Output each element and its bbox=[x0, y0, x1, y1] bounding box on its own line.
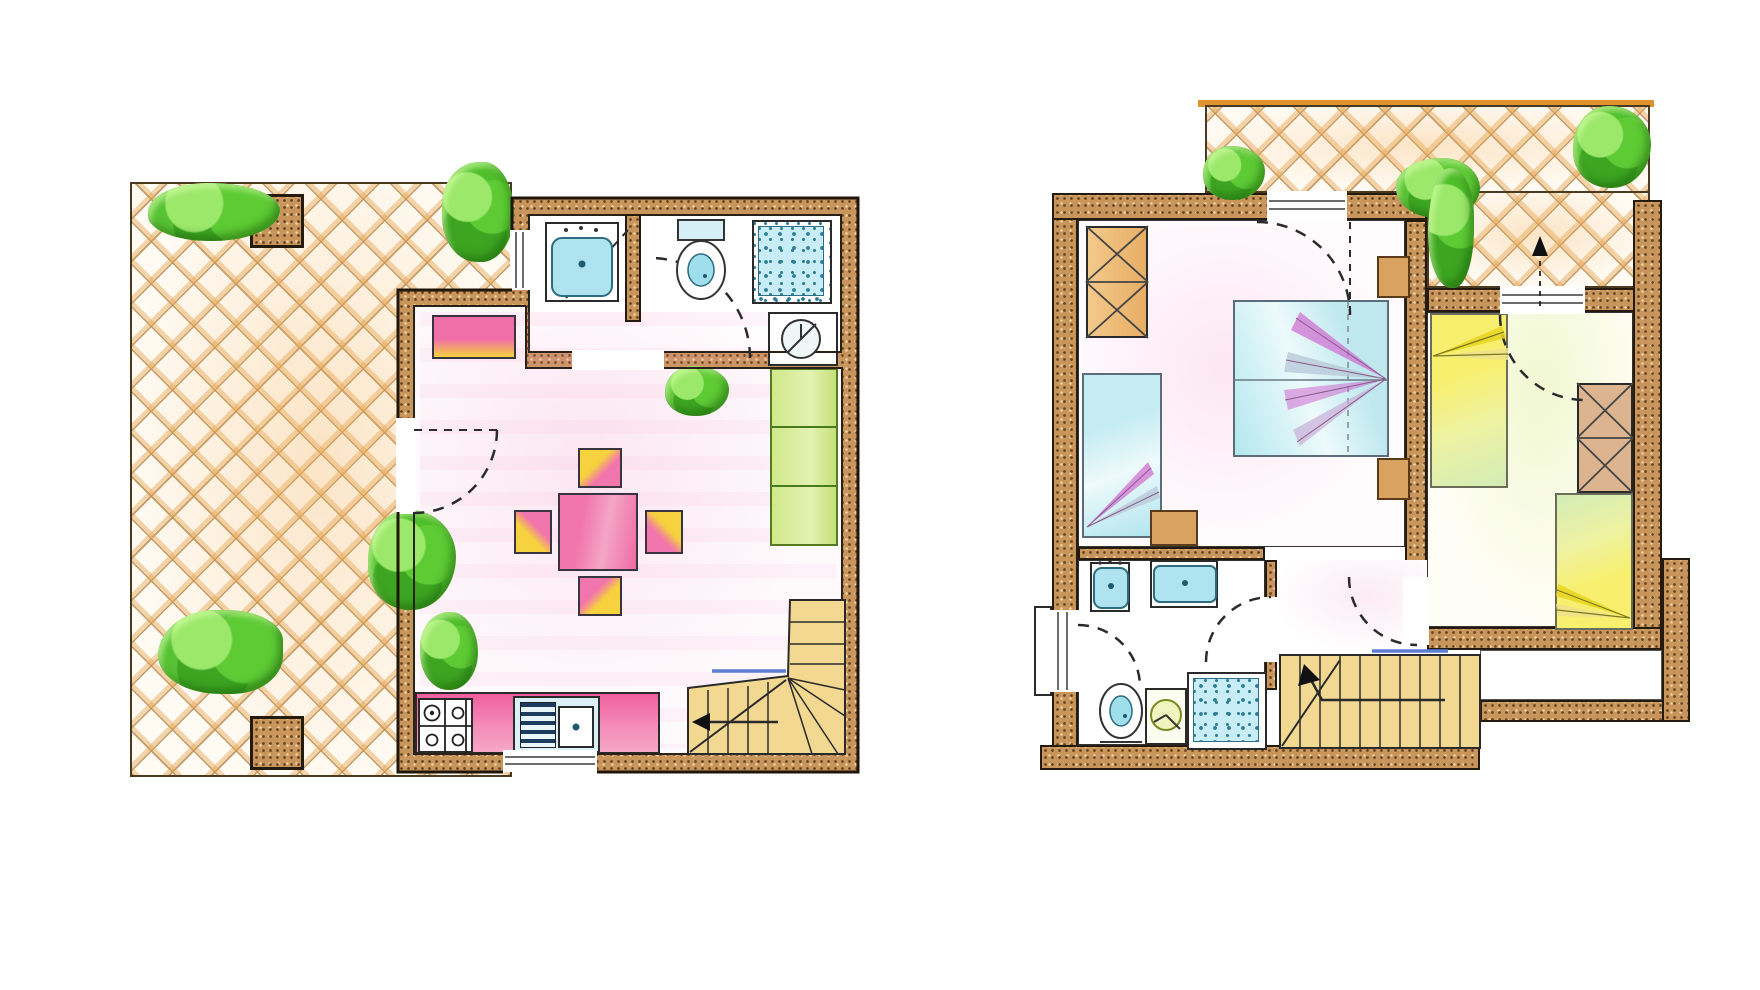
shower-tray-upper bbox=[1187, 672, 1267, 750]
single-bed-a bbox=[1430, 313, 1508, 488]
bedroom2-door-opening bbox=[1403, 577, 1429, 645]
single-bed-b bbox=[1555, 493, 1633, 630]
bedroom2-bottom-wall bbox=[1427, 627, 1662, 650]
nightstand-north bbox=[1377, 256, 1410, 298]
landing-floor bbox=[1480, 650, 1662, 700]
terrace-door-opening bbox=[396, 418, 416, 514]
dining-table bbox=[558, 493, 638, 571]
potted-plant-corner bbox=[420, 612, 478, 690]
washbasin-small bbox=[1090, 562, 1130, 612]
bathroom2-door-opening bbox=[1263, 597, 1279, 662]
bush-balcony-right-wall bbox=[1428, 168, 1474, 288]
double-bed bbox=[1233, 300, 1389, 457]
landing-bottom-wall bbox=[1480, 700, 1690, 722]
dining-chair-west bbox=[514, 510, 552, 554]
bathroom-partition-wall bbox=[625, 214, 641, 322]
nightstand-small bbox=[1150, 510, 1198, 546]
planter-box-bottom bbox=[250, 716, 304, 770]
bush-terrace-top-right bbox=[442, 162, 514, 262]
bathroom-window bbox=[510, 230, 530, 290]
sink-drainer bbox=[520, 702, 556, 748]
bathroom2-top-wall bbox=[1078, 547, 1265, 560]
washing-machine bbox=[1145, 688, 1187, 745]
bush-terrace-bottom-left bbox=[158, 610, 283, 694]
bathroom-doorway bbox=[572, 350, 664, 370]
stair-hall-floor bbox=[1277, 650, 1480, 745]
bedroom2-balcony-door-opening bbox=[1500, 286, 1585, 314]
bedroom2-right-wall bbox=[1633, 200, 1662, 650]
dining-chair-south bbox=[578, 576, 622, 616]
floor-plan-sheet bbox=[0, 0, 1760, 990]
dining-chair-east bbox=[645, 510, 683, 554]
wardrobe-bedroom1 bbox=[1086, 226, 1148, 338]
bench bbox=[432, 315, 516, 359]
landing-right-wall bbox=[1662, 558, 1690, 722]
nightstand-south bbox=[1377, 458, 1410, 500]
washbasin-wide bbox=[1150, 560, 1218, 608]
stove bbox=[418, 698, 473, 753]
dining-chair-north bbox=[578, 448, 622, 488]
wardrobe-bedroom2 bbox=[1577, 383, 1633, 493]
washbasin-counter bbox=[545, 222, 619, 302]
bathroom2-window bbox=[1050, 610, 1080, 692]
shower-tray bbox=[752, 220, 832, 304]
sink-basin bbox=[558, 706, 594, 748]
sofa bbox=[770, 368, 838, 546]
bedroom1-balcony-door-opening bbox=[1267, 191, 1347, 222]
boiler-unit bbox=[768, 312, 838, 366]
kitchen-window bbox=[503, 750, 597, 772]
